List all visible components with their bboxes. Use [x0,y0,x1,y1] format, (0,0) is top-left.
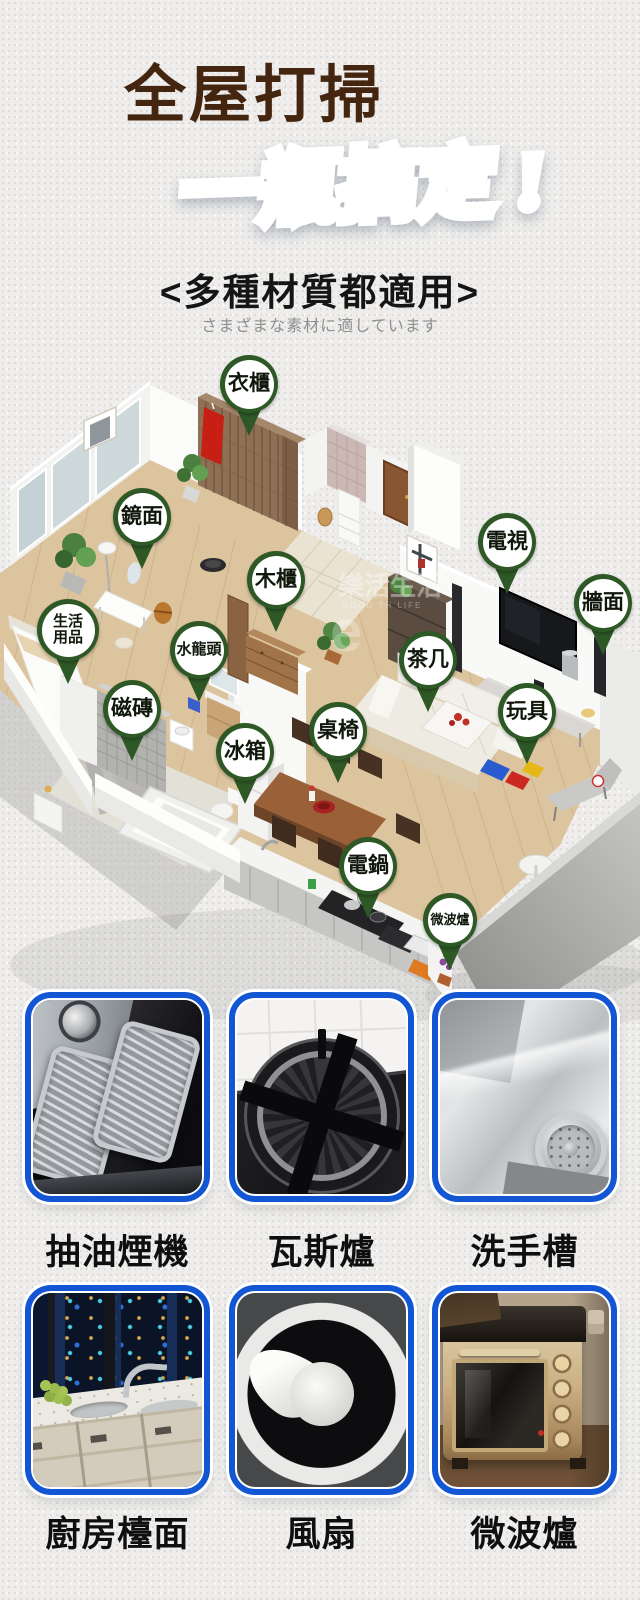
gas-stove-photo [237,1000,406,1194]
photo-card-gas-stove [229,992,414,1202]
svg-text:e: e [330,599,362,664]
tagline-japanese: さまざまな素材に適しています [0,312,640,336]
slogan-text: 一瓶搞定 ! [177,117,550,242]
floorplan-illustration: 樂活生活 GOOD TH LIFE e [0,345,640,1045]
kitchen-counter-photo [33,1293,202,1487]
photo-label: 廚房檯面 [19,1506,216,1557]
microwave-photo [440,1293,609,1487]
photo-label: 瓦斯爐 [223,1224,420,1275]
photo-card-kitchen-counter [25,1285,210,1495]
photo-label: 風扇 [223,1506,420,1557]
fan-photo [237,1293,406,1487]
photo-label: 微波爐 [426,1506,623,1557]
photo-label: 洗手槽 [426,1224,623,1275]
photo-card-fan [229,1285,414,1495]
photo-card-microwave [432,1285,617,1495]
photo-card-sink [432,992,617,1202]
slogan-wrap: 一瓶搞定 ! [182,124,545,236]
photo-card-range-hood [25,992,210,1202]
photo-label: 抽油煙機 [19,1224,216,1275]
sink-photo [440,1000,609,1194]
range-hood-photo [33,1000,202,1194]
watermark-text: 樂活生活 [338,571,442,601]
tagline: <多種材質都適用> [0,262,640,316]
page-title: 全屋打掃 [124,44,384,134]
promo-page: 全屋打掃 一瓶搞定 ! <多種材質都適用> さまざまな素材に適しています [0,0,640,1600]
